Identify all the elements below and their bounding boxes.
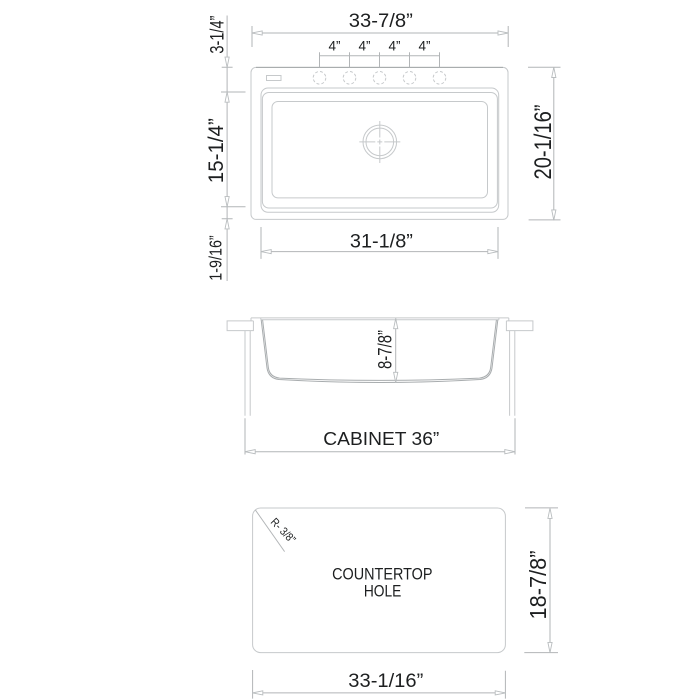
svg-text:4”: 4” (328, 39, 340, 54)
svg-text:8-7/8”: 8-7/8” (375, 330, 397, 369)
svg-text:15-1/4”: 15-1/4” (205, 118, 228, 183)
svg-text:4”: 4” (418, 39, 430, 54)
svg-text:4”: 4” (388, 39, 400, 54)
svg-text:20-1/16”: 20-1/16” (530, 104, 557, 179)
svg-text:4”: 4” (358, 39, 370, 54)
svg-text:1-9/16”: 1-9/16” (205, 235, 225, 281)
svg-text:HOLE: HOLE (364, 583, 402, 601)
svg-text:R- 3/8”: R- 3/8” (268, 516, 298, 546)
svg-text:CABINET 36”: CABINET 36” (323, 428, 439, 449)
svg-text:3-1/4”: 3-1/4” (207, 16, 228, 54)
svg-text:31-1/8”: 31-1/8” (350, 231, 413, 252)
svg-text:33-7/8”: 33-7/8” (349, 11, 413, 32)
svg-text:18-7/8”: 18-7/8” (525, 551, 551, 620)
svg-text:33-1/16”: 33-1/16” (348, 671, 423, 692)
svg-text:COUNTERTOP: COUNTERTOP (332, 566, 432, 584)
